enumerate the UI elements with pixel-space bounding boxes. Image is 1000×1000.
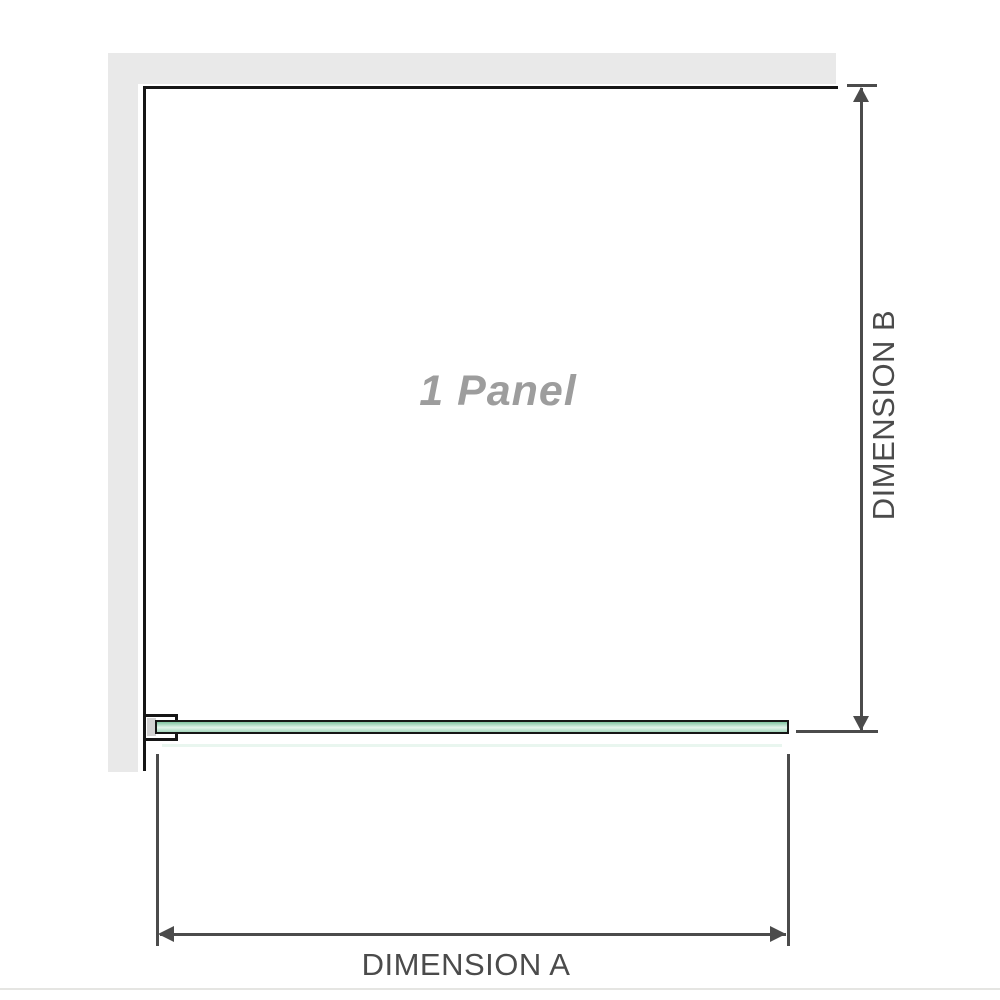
- arrow-down-icon: [853, 716, 869, 731]
- dimension-a-tick-left: [156, 754, 159, 946]
- shower-panel-dimension-diagram: 1 Panel DIMENSION B DIMENSION A: [0, 0, 1000, 1000]
- dimension-b-line: [860, 88, 863, 731]
- wall-left-bar: [108, 53, 138, 772]
- wall-inner-edge-left: [143, 86, 146, 771]
- glass-panel-bar: [155, 720, 789, 734]
- dimension-b-label: DIMENSION B: [869, 285, 899, 545]
- dimension-a-label: DIMENSION A: [316, 949, 616, 980]
- arrow-left-icon: [158, 926, 174, 942]
- dimension-a-tick-right: [787, 754, 790, 946]
- bottom-divider: [0, 988, 1000, 990]
- wall-inner-edge-top: [143, 86, 838, 89]
- panel-count-label: 1 Panel: [348, 370, 648, 413]
- wall-top-bar: [108, 53, 836, 84]
- dimension-a-line: [160, 933, 786, 936]
- glass-reflection: [162, 744, 782, 747]
- arrow-up-icon: [853, 87, 869, 102]
- arrow-right-icon: [770, 926, 786, 942]
